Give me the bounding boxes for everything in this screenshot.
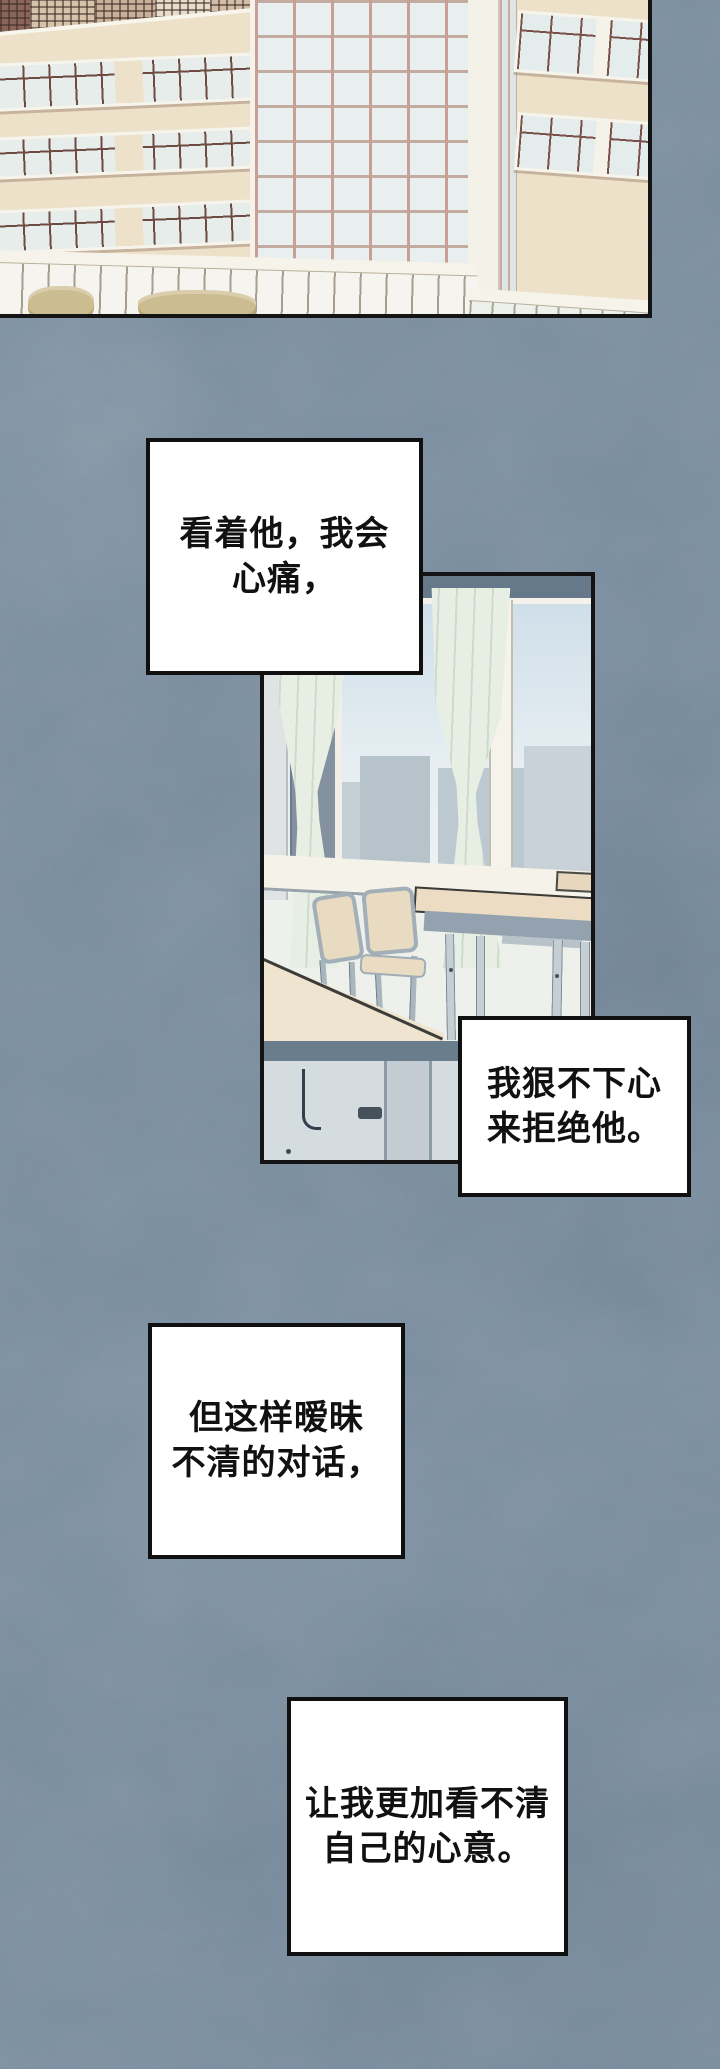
desk-leg bbox=[445, 934, 456, 1040]
caption-box-4: 让我更加看不清 自己的心意。 bbox=[287, 1697, 568, 1956]
desk-top-far bbox=[556, 871, 595, 893]
right-wing-window-band-1 bbox=[514, 10, 652, 82]
desk-screw bbox=[449, 968, 453, 972]
chair-back bbox=[311, 891, 365, 965]
window-band-2 bbox=[0, 126, 259, 179]
window-band-3 bbox=[0, 199, 259, 254]
corner-screw bbox=[286, 1149, 291, 1154]
caption-box-1: 看着他，我会 心痛， bbox=[146, 438, 423, 675]
building-panel bbox=[0, 0, 652, 318]
caption-line: 看着他，我会 bbox=[180, 512, 390, 557]
caption-box-2: 我狠不下心 来拒绝他。 bbox=[458, 1016, 691, 1197]
coat-hook bbox=[302, 1069, 321, 1130]
rubber-foot bbox=[358, 1107, 382, 1119]
glass-stairwell-tower bbox=[250, 0, 470, 290]
caption-line: 但这样暧昧 bbox=[189, 1396, 364, 1441]
tower-corner-column bbox=[468, 0, 500, 296]
right-wing-window-band-2 bbox=[514, 112, 652, 180]
bush bbox=[28, 286, 94, 318]
chair-seat bbox=[359, 954, 426, 979]
caption-line: 来拒绝他。 bbox=[487, 1107, 662, 1152]
chair-back bbox=[361, 886, 419, 956]
caption-line: 我狠不下心 bbox=[487, 1062, 662, 1107]
caption-line: 不清的对话， bbox=[172, 1441, 382, 1486]
desk-screw bbox=[555, 974, 559, 978]
table-leg-column bbox=[384, 1061, 432, 1160]
comic-page: 看着他，我会 心痛， 我狠不下心 来拒绝他。 但这样暧昧 不清的对话， 让我更加… bbox=[0, 0, 720, 2069]
caption-box-3: 但这样暧昧 不清的对话， bbox=[148, 1323, 405, 1559]
caption-line: 心痛， bbox=[232, 557, 337, 602]
bush bbox=[138, 290, 256, 318]
window-band-1 bbox=[0, 52, 259, 111]
caption-line: 自己的心意。 bbox=[323, 1827, 533, 1872]
caption-line: 让我更加看不清 bbox=[305, 1782, 550, 1827]
